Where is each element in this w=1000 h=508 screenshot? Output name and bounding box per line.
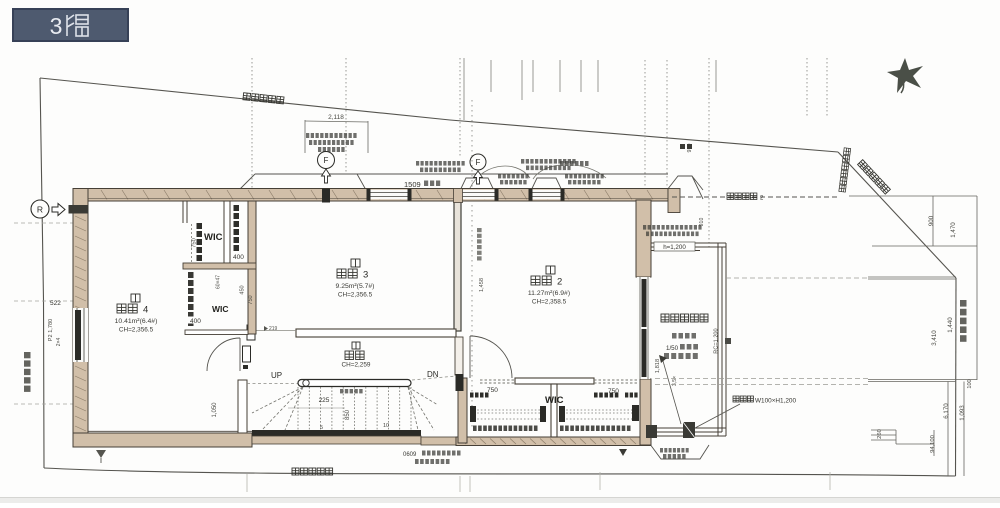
svg-text:2,118: 2,118	[328, 114, 344, 121]
svg-text:4: 4	[143, 305, 148, 316]
svg-text:100: 100	[967, 379, 973, 388]
svg-text:260: 260	[877, 429, 883, 439]
svg-text:CH=2,259: CH=2,259	[342, 362, 371, 369]
svg-text:3,410: 3,410	[931, 330, 938, 346]
svg-text:450: 450	[240, 285, 246, 294]
svg-text:CH=2,358.5: CH=2,358.5	[532, 299, 567, 306]
svg-text:WIC: WIC	[212, 304, 229, 314]
svg-text:DN: DN	[427, 370, 439, 379]
svg-text:P2 1,780: P2 1,780	[48, 319, 54, 341]
svg-text:850: 850	[345, 409, 351, 420]
svg-text:522: 522	[50, 300, 61, 307]
svg-text:0609: 0609	[403, 452, 417, 458]
svg-text:225: 225	[319, 397, 330, 404]
svg-text:11.27m²(6.9#): 11.27m²(6.9#)	[528, 290, 570, 297]
svg-text:910: 910	[699, 218, 705, 227]
svg-text:1,050: 1,050	[212, 402, 218, 418]
svg-text:10: 10	[383, 423, 389, 429]
svg-text:1509: 1509	[404, 180, 421, 189]
svg-text:WIC: WIC	[545, 395, 564, 406]
svg-text:R: R	[37, 205, 43, 215]
svg-text:F: F	[324, 156, 329, 165]
svg-text:UP: UP	[271, 371, 282, 380]
svg-text:400: 400	[190, 318, 201, 325]
svg-text:6,170: 6,170	[943, 403, 950, 419]
svg-text:1,818: 1,818	[655, 359, 661, 374]
svg-text:900: 900	[928, 215, 935, 226]
svg-text:1,458: 1,458	[479, 278, 485, 292]
svg-text:W100×H1,200: W100×H1,200	[755, 398, 796, 405]
svg-text:F: F	[476, 158, 481, 167]
svg-text:1,093: 1,093	[959, 405, 966, 421]
svg-text:750: 750	[487, 387, 498, 394]
svg-text:10.41m²(6.4#): 10.41m²(6.4#)	[115, 318, 158, 325]
svg-text:5: 5	[320, 425, 323, 431]
svg-text:750: 750	[192, 238, 198, 248]
svg-text:750: 750	[248, 295, 254, 304]
svg-text:219: 219	[269, 326, 278, 332]
svg-text:9.25m²(5.7#): 9.25m²(5.7#)	[336, 283, 375, 290]
svg-text:60×47: 60×47	[216, 275, 222, 289]
svg-text:1,470: 1,470	[950, 222, 957, 238]
svg-text:2: 2	[557, 277, 562, 288]
svg-text:RC=1,200: RC=1,200	[714, 328, 720, 353]
svg-text:2×4: 2×4	[56, 338, 62, 347]
svg-text:h=1,200: h=1,200	[663, 244, 686, 251]
svg-text:94,100: 94,100	[930, 435, 936, 453]
svg-text:400: 400	[233, 254, 244, 261]
svg-text:3: 3	[50, 13, 63, 39]
svg-text:WIC: WIC	[204, 232, 223, 243]
svg-text:1/50: 1/50	[666, 345, 679, 352]
svg-text:3: 3	[363, 270, 368, 281]
svg-text:1,440: 1,440	[947, 317, 954, 333]
svg-text:CH=2,356.5: CH=2,356.5	[119, 327, 154, 334]
svg-text:750: 750	[608, 388, 619, 395]
svg-text:CH=2,356.5: CH=2,356.5	[338, 292, 373, 299]
